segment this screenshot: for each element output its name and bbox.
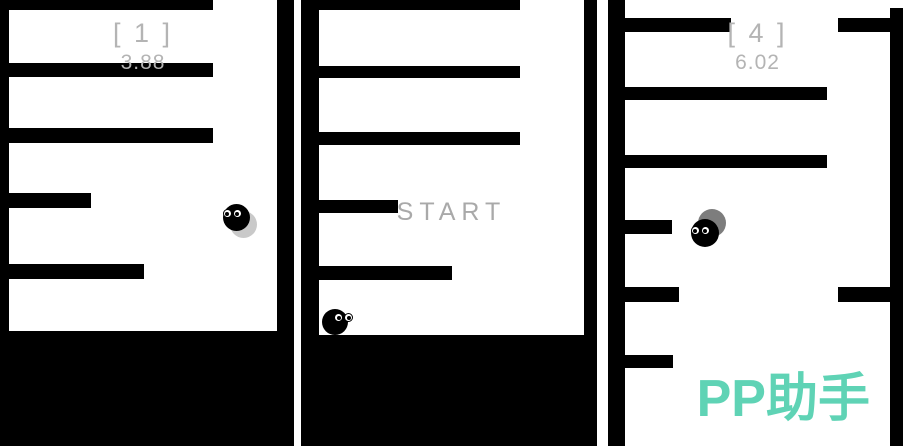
game-screen-level-4: [ 4 ] 6.02 PP助手 [608,0,903,446]
timer-value: 6.02 [625,52,890,73]
platform-bar [0,264,144,279]
player-ball[interactable] [322,309,348,335]
level-indicator: [ 1 ] [9,20,277,47]
hud: [ 4 ] 6.02 [625,20,890,73]
right-wall [277,0,294,340]
platform-bar [301,0,520,10]
eye-icon [233,209,242,218]
player-ball[interactable] [691,219,719,247]
platform-bar [0,0,213,10]
pp-assistant-watermark: PP助手 [697,372,870,427]
game-screenshot-collage: [ 1 ] 3.88 START [ 4 ] 6.02 PP助手 [0,0,903,446]
pupil-icon [235,212,239,216]
platform-bar [608,220,672,234]
googly-eyes-icon [334,313,353,322]
pupil-icon [703,229,707,233]
floor-block [0,331,294,446]
pupil-icon [337,316,341,320]
game-screen-level-1: [ 1 ] 3.88 [0,0,294,446]
platform-bar [0,128,213,143]
platform-bar [608,87,827,100]
platform-bar [301,132,520,145]
level-indicator: [ 4 ] [625,20,890,47]
eye-icon [223,209,232,218]
eye-icon [334,313,343,322]
platform-bar [301,66,520,78]
floor-block [301,335,597,446]
platform-bar [608,287,679,302]
eye-icon [344,313,353,322]
platform-bar [608,355,673,368]
hud: [ 1 ] 3.88 [9,20,277,73]
googly-eyes-icon [223,209,242,218]
pupil-icon [347,316,351,320]
eye-icon [701,226,710,235]
googly-eyes-icon [691,226,710,235]
platform-bar [0,193,91,208]
platform-bar [608,155,827,168]
platform-bar [301,266,452,280]
right-wall [584,0,597,340]
right-wall [890,8,903,446]
platform-bar [838,287,903,302]
timer-value: 3.88 [9,52,277,73]
pupil-icon [693,229,697,233]
pupil-icon [225,212,229,216]
player-ball[interactable] [223,204,250,231]
game-screen-start: START [301,0,597,446]
start-button[interactable]: START [319,200,584,225]
eye-icon [691,226,700,235]
